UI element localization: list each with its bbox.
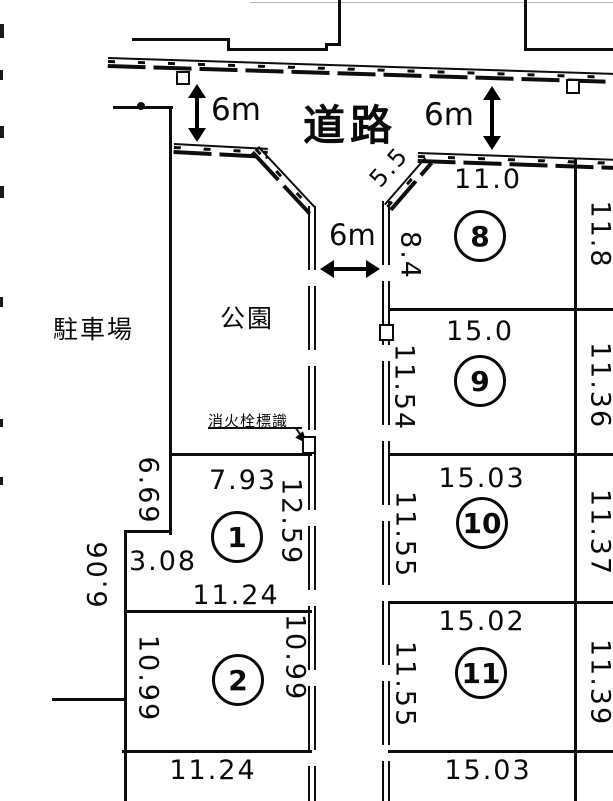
- road-width-arrow-middle: [320, 260, 380, 278]
- scan-artifact: [0, 126, 4, 138]
- dim-plot11-right: 11.39: [585, 638, 613, 728]
- plot-boundary: [388, 308, 613, 311]
- plot10-number: 10: [456, 497, 508, 549]
- plot-boundary: [388, 453, 613, 456]
- dim-plot2-bottom: 11.24: [153, 755, 273, 786]
- hydrant-marker: [302, 436, 316, 454]
- road-width-arrow-right: [483, 86, 501, 150]
- park-west-boundary: [169, 108, 172, 535]
- boundary-marker: [379, 324, 394, 341]
- scan-artifact: [0, 419, 3, 427]
- plot11-number: 11: [455, 647, 507, 699]
- boundary-marker: [566, 79, 580, 94]
- plot-boundary: [170, 453, 312, 456]
- scan-artifact: [0, 297, 3, 307]
- plot-boundary: [388, 750, 613, 753]
- scan-artifact: [0, 477, 3, 485]
- dim-plot11-left: 11.55: [390, 640, 421, 730]
- scan-artifact: [0, 24, 4, 38]
- boundary-marker: [176, 71, 190, 85]
- parking-boundary: [52, 698, 126, 701]
- dim-plot1-left-upper: 6.69: [133, 451, 164, 531]
- dim-plot9-right: 11.36: [585, 341, 613, 431]
- dim-plot9-top: 15.0: [420, 316, 540, 347]
- building-outline: [132, 38, 227, 41]
- dim-plot8-top: 11.0: [428, 164, 548, 195]
- building-outline: [524, 0, 527, 50]
- plot9-number: 9: [454, 355, 506, 407]
- plot-boundary: [122, 750, 312, 753]
- road-width-arrow-left: [188, 84, 206, 142]
- cadastral-map: 道路 6m 6m 5.5 6m 駐車場 公園 消火栓標識: [0, 0, 613, 801]
- dim-plot8-left: 8.4: [395, 226, 426, 286]
- east-boundary: [574, 158, 577, 801]
- boundary-point: [137, 102, 145, 110]
- plot8-number: 8: [454, 210, 506, 262]
- scan-line: [250, 2, 613, 3]
- dim-plot11-top: 15.02: [422, 606, 542, 637]
- parking-label: 駐車場: [53, 310, 134, 346]
- dim-plot1-bottom: 11.24: [176, 580, 296, 611]
- dim-plot10-right: 11.37: [585, 488, 613, 578]
- building-outline: [338, 0, 341, 45]
- road-width-top-right: 6m: [424, 97, 474, 133]
- plot2-number: 2: [212, 654, 264, 706]
- road-west-edge: [308, 206, 316, 801]
- dim-plot1-right: 12.59: [276, 477, 307, 567]
- dim-plot8-right: 11.8: [585, 195, 613, 275]
- building-outline: [524, 48, 613, 51]
- dim-plot2-right: 10.99: [280, 613, 311, 703]
- hydrant-leader-line: [208, 427, 302, 429]
- dim-plot10-top: 15.03: [422, 463, 542, 494]
- plot-boundary: [388, 601, 613, 604]
- dim-plot11-bottom: 15.03: [428, 755, 548, 786]
- dim-plot1-left-step: 3.08: [103, 546, 223, 577]
- dim-plot1-outer-left: 6.06: [83, 534, 114, 614]
- scan-artifact: [0, 70, 3, 80]
- road-width-middle: 6m: [329, 218, 376, 252]
- dim-plot10-left: 11.55: [390, 490, 421, 580]
- road-label: 道路: [303, 92, 397, 153]
- park-label: 公園: [220, 299, 274, 335]
- dim-plot9-left: 11.54: [389, 343, 420, 433]
- scan-artifact: [0, 186, 4, 198]
- dim-plot2-left: 10.99: [133, 634, 164, 724]
- road-width-top-left: 6m: [211, 92, 261, 128]
- park-chamfer-edge: [251, 146, 316, 215]
- building-outline: [227, 48, 327, 51]
